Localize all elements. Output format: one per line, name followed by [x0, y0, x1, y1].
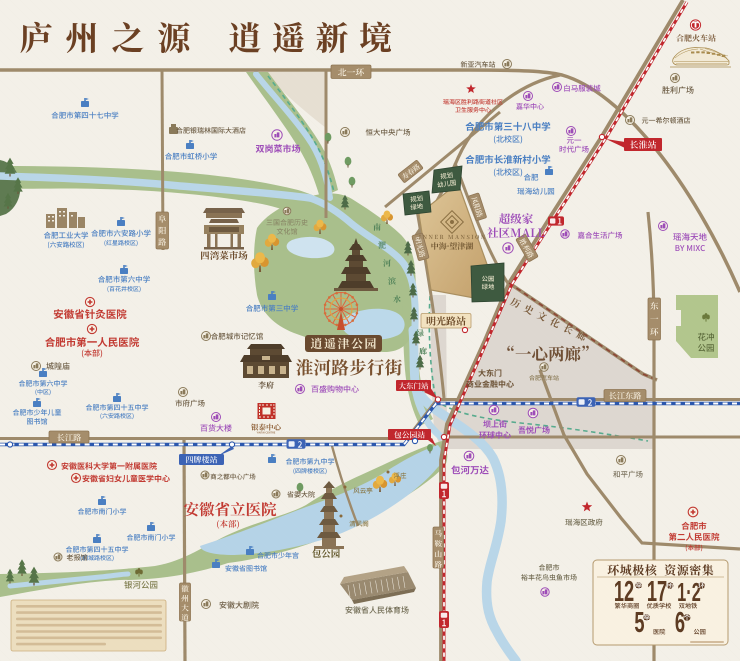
svg-text:1·2: 1·2 [677, 577, 701, 607]
svg-text:5: 5 [634, 607, 644, 639]
svg-text:6: 6 [675, 607, 685, 639]
